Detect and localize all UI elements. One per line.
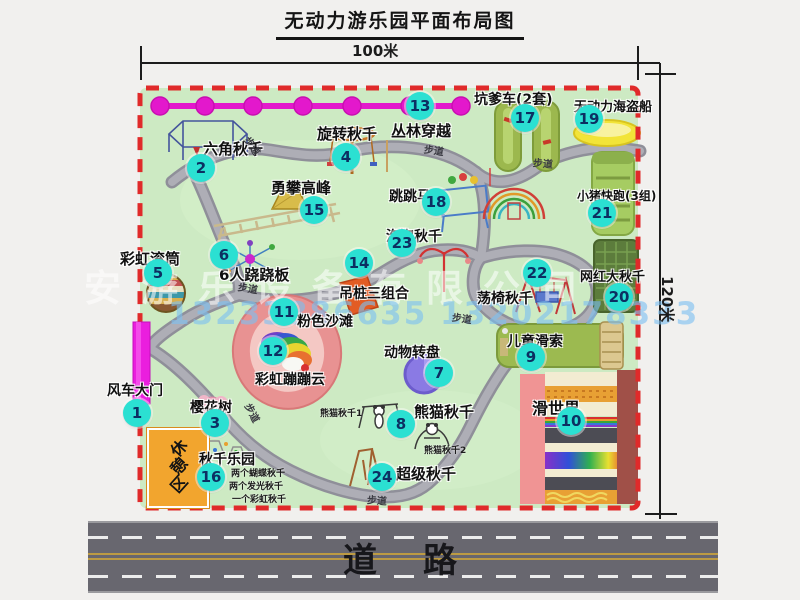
marker-20: 20 (605, 283, 633, 311)
marker-17: 17 (511, 104, 539, 132)
attraction-label-1: 风车大门 (107, 380, 163, 400)
marker-21: 21 (588, 199, 616, 227)
marker-16: 16 (197, 463, 225, 491)
attraction-label-14: 吊桩三组合 (339, 283, 409, 303)
walkway-label-7: 步道 (367, 491, 388, 507)
attraction-label-13: 丛林穿越 (391, 120, 451, 141)
attraction-label-20: 网红大秋千 (580, 266, 645, 285)
marker-12: 12 (259, 337, 287, 365)
attraction-label-7: 动物转盘 (384, 342, 440, 362)
marker-11: 11 (270, 298, 298, 326)
labels-overlay: 风车大门1六角秋千2樱花树3旋转秋千4彩虹滚筒56人跷跷板6动物转盘7熊猫秋千8… (0, 0, 800, 600)
marker-18: 18 (422, 188, 450, 216)
page-title-text: 无动力游乐园平面布局图 (276, 6, 523, 40)
walkway-label-4: 步道 (237, 278, 259, 296)
attraction-label-21: 小猪快跑(3组) (577, 187, 656, 204)
marker-13: 13 (406, 92, 434, 120)
sub-label-3: 两个蝴蝶秋千 (231, 466, 285, 479)
marker-23: 23 (388, 229, 416, 257)
sub-label-5: 一个彩虹秋千 (232, 492, 286, 505)
attraction-label-4: 旋转秋千 (317, 123, 377, 144)
sub-label-2: 熊猫秋千2 (424, 443, 466, 456)
walkway-label-3: 步道 (532, 154, 553, 171)
marker-4: 4 (332, 143, 360, 171)
attraction-label-12: 彩虹蹦蹦云 (255, 369, 325, 389)
marker-24: 24 (368, 463, 396, 491)
attraction-label-24: 超级秋千 (396, 463, 456, 484)
marker-19: 19 (575, 105, 603, 133)
marker-15: 15 (300, 196, 328, 224)
marker-1: 1 (123, 399, 151, 427)
dimension-width-label: 100米 (352, 40, 398, 61)
dimension-height-label: 120米 (657, 276, 678, 322)
marker-9: 9 (517, 343, 545, 371)
marker-3: 3 (201, 409, 229, 437)
walkway-label-6: 步道 (242, 400, 265, 425)
marker-22: 22 (523, 259, 551, 287)
walkway-label-2: 步道 (423, 141, 445, 159)
attraction-label-17: 坑爹车(2套) (474, 89, 553, 109)
walkway-label-5: 步道 (451, 309, 473, 327)
sub-label-4: 两个发光秋千 (229, 479, 283, 492)
attraction-label-22: 荡椅秋千 (477, 288, 533, 308)
attraction-label-8: 熊猫秋千 (414, 401, 474, 422)
attraction-label-11: 粉色沙滩 (297, 311, 353, 331)
marker-6: 6 (210, 241, 238, 269)
attraction-label-15: 勇攀高峰 (271, 177, 331, 198)
marker-2: 2 (187, 154, 215, 182)
page-title: 无动力游乐园平面布局图 (0, 6, 800, 40)
marker-8: 8 (387, 410, 415, 438)
marker-7: 7 (425, 359, 453, 387)
marker-5: 5 (144, 259, 172, 287)
marker-10: 10 (557, 407, 585, 435)
marker-14: 14 (345, 249, 373, 277)
playground-layout-screenshot: 无动力游乐园平面布局图 (0, 0, 800, 600)
sub-label-1: 熊猫秋千1 (320, 406, 362, 419)
